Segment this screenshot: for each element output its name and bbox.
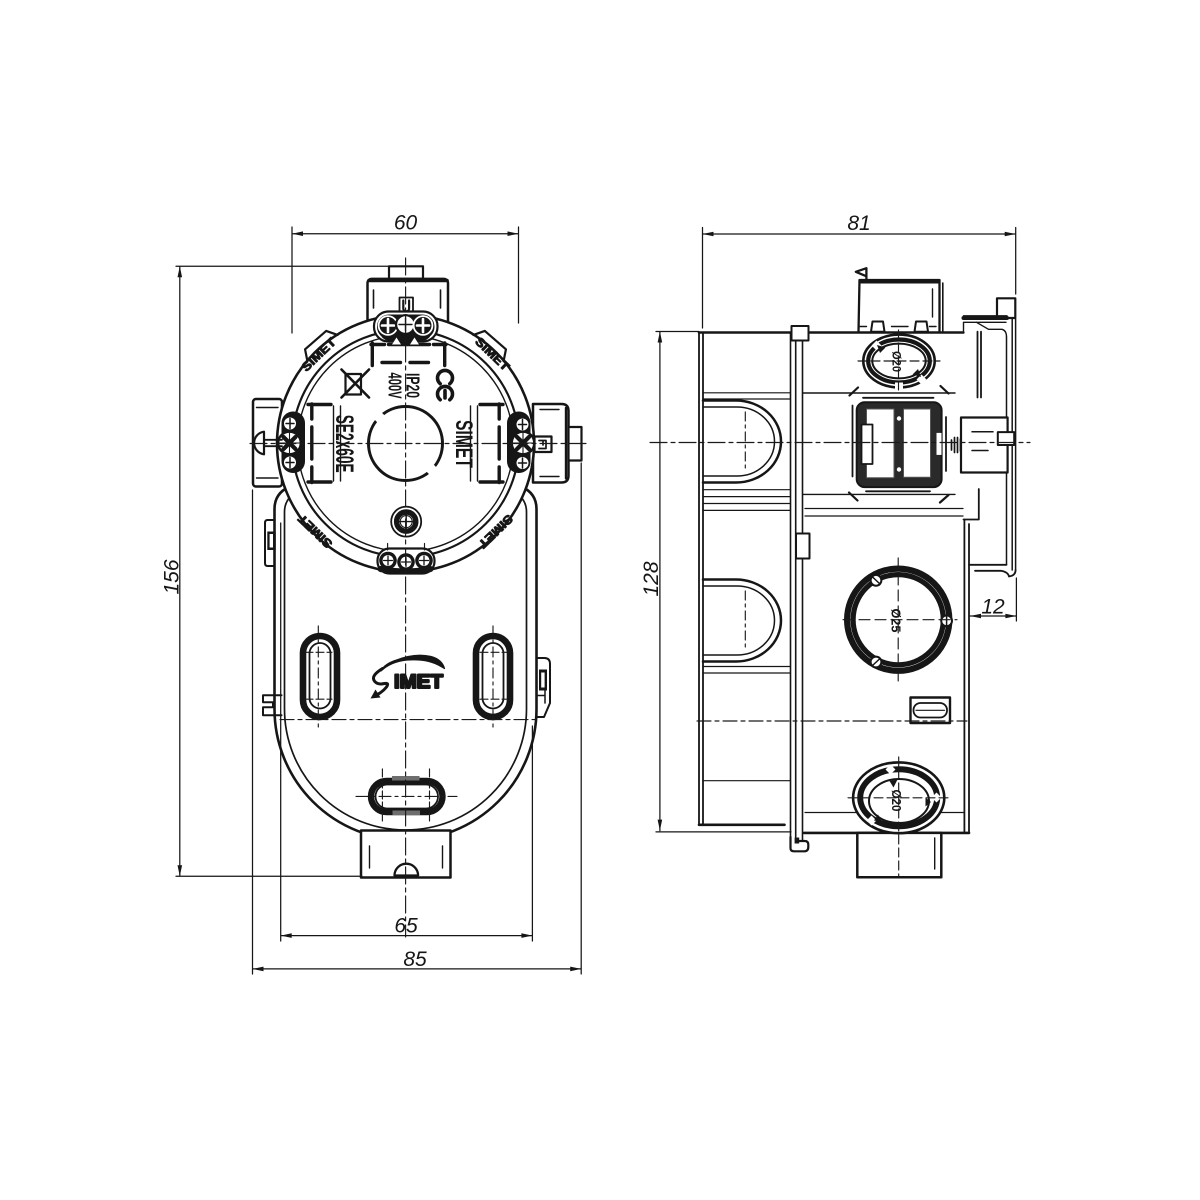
svg-text:400V: 400V [384, 373, 404, 399]
svg-text:IMET: IMET [394, 672, 443, 693]
svg-text:Ø20: Ø20 [890, 351, 904, 372]
svg-text:12: 12 [981, 596, 1005, 619]
svg-text:128: 128 [640, 561, 663, 596]
svg-text:85: 85 [403, 948, 427, 971]
svg-text:SIMET: SIMET [450, 420, 477, 468]
svg-text:81: 81 [847, 212, 870, 235]
svg-text:Ø25: Ø25 [889, 609, 904, 633]
svg-text:Ø20: Ø20 [889, 790, 903, 812]
svg-text:156: 156 [161, 559, 184, 594]
svg-text:60: 60 [394, 212, 418, 235]
svg-text:65: 65 [394, 915, 418, 938]
